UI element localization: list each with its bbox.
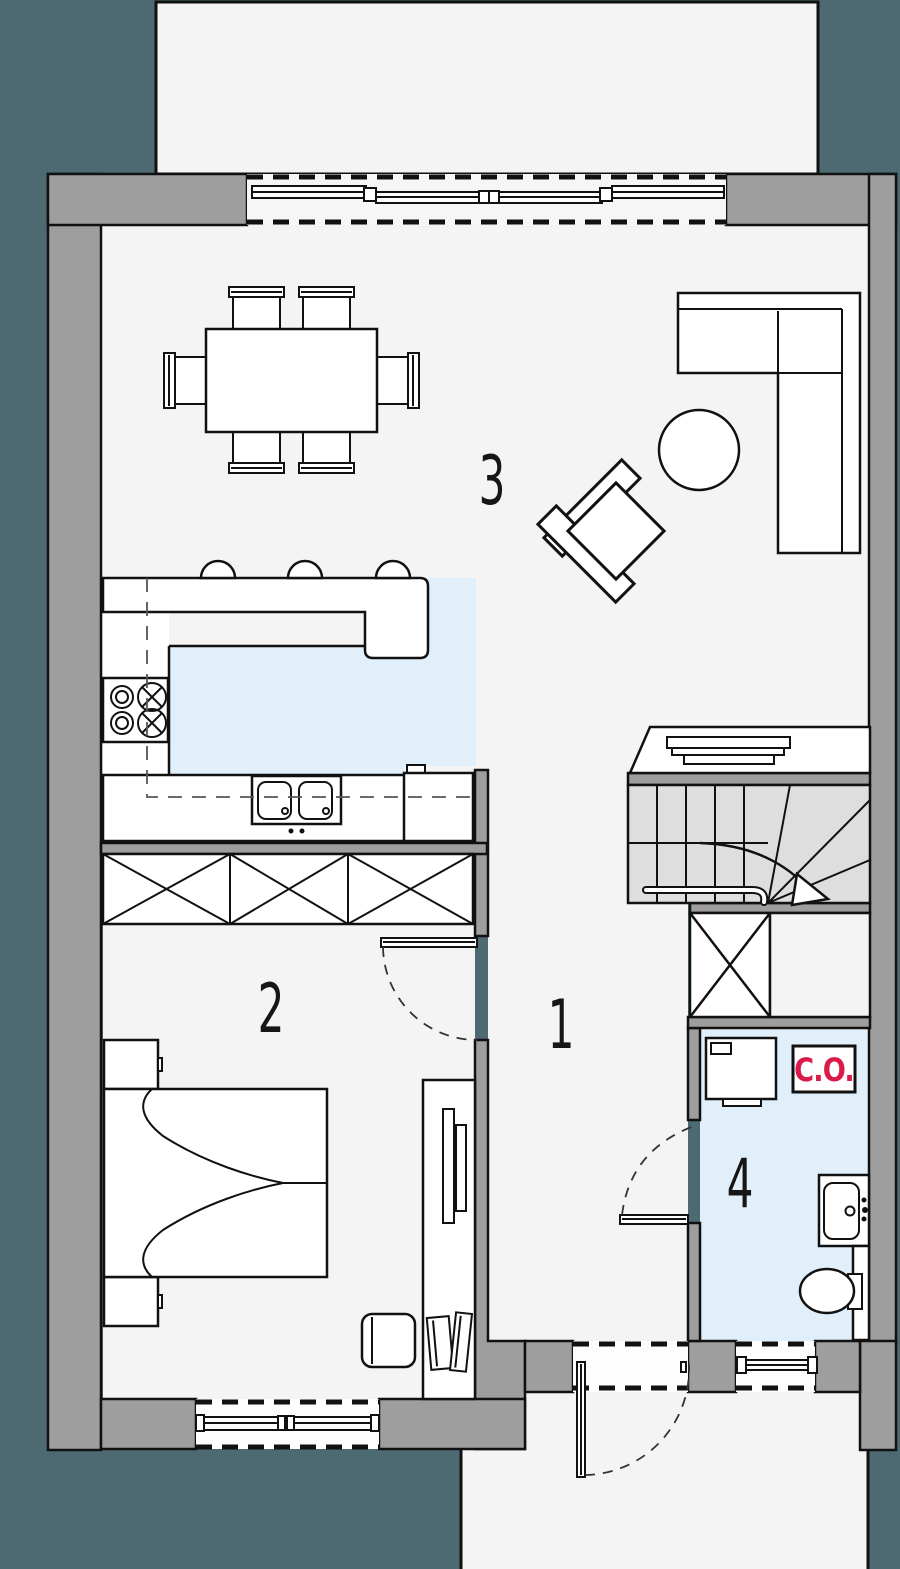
coffee-table bbox=[659, 410, 739, 490]
double-bed bbox=[104, 1089, 327, 1277]
bathroom-window bbox=[736, 1341, 817, 1392]
wall-kitchen-bedroom bbox=[101, 843, 487, 854]
wall-bath-west-lower bbox=[688, 1223, 700, 1341]
washing-machine bbox=[706, 1038, 776, 1106]
wardrobe bbox=[103, 854, 473, 924]
wall-hall-south-1 bbox=[525, 1341, 573, 1392]
toilet bbox=[800, 1269, 862, 1313]
terrace-area bbox=[156, 2, 818, 174]
wall-stairs-south bbox=[690, 903, 870, 913]
wall-top-left bbox=[48, 174, 247, 225]
dining-table bbox=[206, 329, 377, 432]
landing-sideboard bbox=[667, 737, 790, 764]
bathroom-sink bbox=[819, 1175, 869, 1246]
room-label-bathroom: 4 bbox=[727, 1144, 754, 1223]
wall-understairs-south bbox=[688, 1017, 870, 1028]
understairs-niche bbox=[770, 913, 870, 1017]
room-label-living: 3 bbox=[479, 441, 506, 520]
desk-chair bbox=[362, 1314, 415, 1367]
kitchen-sink bbox=[252, 776, 341, 834]
terrace-sliding-window bbox=[247, 174, 726, 225]
central-heating-sign: C.O. bbox=[793, 1046, 855, 1092]
wall-bedroom-south-right bbox=[379, 1399, 525, 1449]
wall-stairs-north bbox=[628, 773, 870, 785]
floor-plan-page: C.O. bbox=[0, 0, 900, 1569]
wall-right bbox=[869, 174, 896, 1343]
stove bbox=[103, 678, 168, 742]
wall-bedroom-south-left bbox=[101, 1399, 196, 1449]
wall-block-se bbox=[860, 1341, 896, 1450]
central-heating-label: C.O. bbox=[794, 1052, 854, 1090]
room-label-hallway: 1 bbox=[548, 985, 575, 1064]
staircase bbox=[628, 727, 870, 905]
wall-left bbox=[48, 174, 101, 1450]
wall-hall-south-3 bbox=[815, 1341, 860, 1392]
wall-hall-south-2 bbox=[688, 1341, 736, 1392]
room-label-bedroom: 2 bbox=[258, 969, 285, 1048]
monitor bbox=[443, 1109, 454, 1223]
bedroom-window bbox=[196, 1399, 379, 1449]
entry-porch bbox=[461, 1450, 868, 1569]
floor-plan-drawing: C.O. bbox=[0, 0, 900, 1569]
understairs-storage bbox=[690, 913, 870, 1017]
books-stack bbox=[427, 1312, 472, 1371]
fridge bbox=[404, 765, 473, 841]
wall-bath-west-upper bbox=[688, 1028, 700, 1120]
